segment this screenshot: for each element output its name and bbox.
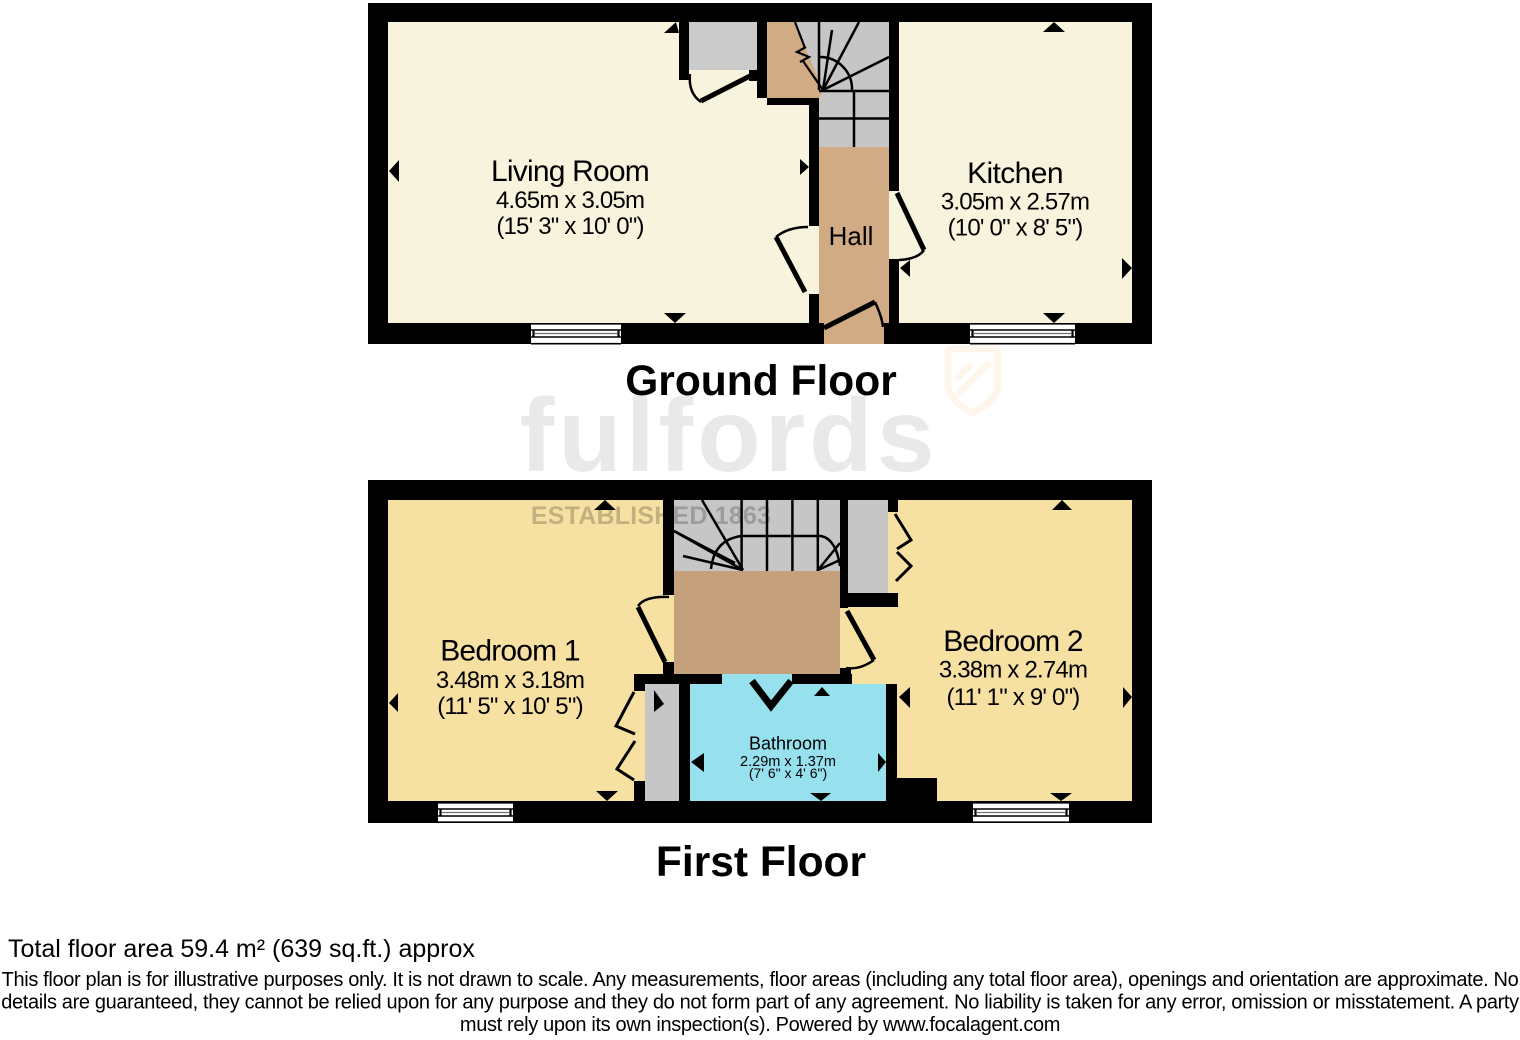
svg-text:Hall: Hall bbox=[829, 221, 874, 251]
svg-text:Total floor area 59.4 m² (639: Total floor area 59.4 m² (639 sq.ft.) ap… bbox=[8, 935, 475, 963]
svg-text:Bedroom 2: Bedroom 2 bbox=[943, 625, 1083, 658]
svg-text:Ground Floor: Ground Floor bbox=[625, 358, 896, 405]
svg-text:ESTABLISHED 1863: ESTABLISHED 1863 bbox=[531, 502, 771, 530]
svg-text:First Floor: First Floor bbox=[656, 839, 866, 886]
svg-text:This floor plan is for illustr: This floor plan is for illustrative purp… bbox=[2, 969, 1519, 991]
svg-text:details are guaranteed, they c: details are guaranteed, they cannot be r… bbox=[1, 992, 1519, 1014]
svg-text:(7' 6" x 4' 6"): (7' 6" x 4' 6") bbox=[749, 765, 827, 781]
svg-text:4.65m x 3.05m: 4.65m x 3.05m bbox=[496, 187, 644, 214]
svg-text:3.38m x 2.74m: 3.38m x 2.74m bbox=[939, 657, 1087, 684]
svg-text:Living Room: Living Room bbox=[491, 155, 649, 188]
svg-text:Kitchen: Kitchen bbox=[967, 157, 1063, 190]
svg-text:(11' 5" x 10' 5"): (11' 5" x 10' 5") bbox=[437, 693, 583, 720]
svg-text:3.48m x 3.18m: 3.48m x 3.18m bbox=[436, 667, 584, 694]
svg-text:3.05m x 2.57m: 3.05m x 2.57m bbox=[941, 189, 1089, 216]
svg-text:(10' 0" x 8' 5"): (10' 0" x 8' 5") bbox=[948, 215, 1083, 242]
svg-text:(11' 1" x 9' 0"): (11' 1" x 9' 0") bbox=[946, 684, 1079, 711]
svg-text:Bedroom 1: Bedroom 1 bbox=[440, 635, 580, 668]
svg-text:(15' 3" x 10' 0"): (15' 3" x 10' 0") bbox=[496, 213, 643, 240]
svg-text:must rely upon its own inspect: must rely upon its own inspection(s). Po… bbox=[460, 1014, 1060, 1036]
svg-text:Bathroom: Bathroom bbox=[749, 734, 827, 754]
